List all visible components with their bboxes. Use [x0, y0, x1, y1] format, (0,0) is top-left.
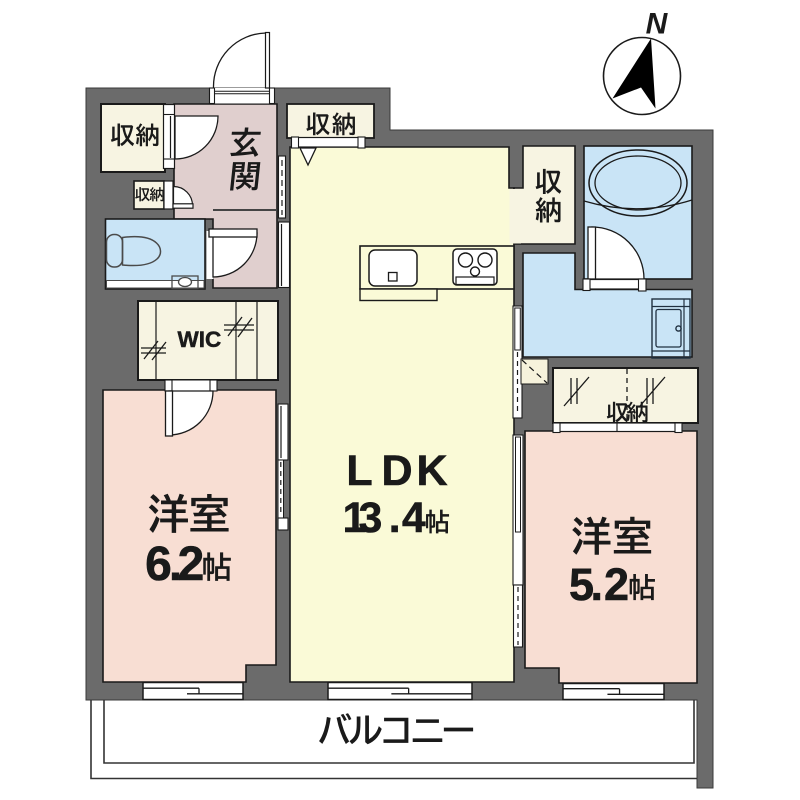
svg-text:.: . — [389, 495, 401, 542]
svg-text:2: 2 — [178, 538, 205, 591]
svg-text:N: N — [646, 8, 669, 41]
svg-text:WIC: WIC — [178, 327, 222, 352]
svg-text:4: 4 — [402, 495, 426, 542]
svg-text:K: K — [416, 447, 447, 495]
svg-text:2: 2 — [604, 559, 629, 610]
svg-text:3: 3 — [359, 495, 383, 542]
svg-text:D: D — [381, 447, 412, 495]
svg-text:L: L — [346, 447, 372, 495]
svg-text:.: . — [590, 559, 603, 610]
